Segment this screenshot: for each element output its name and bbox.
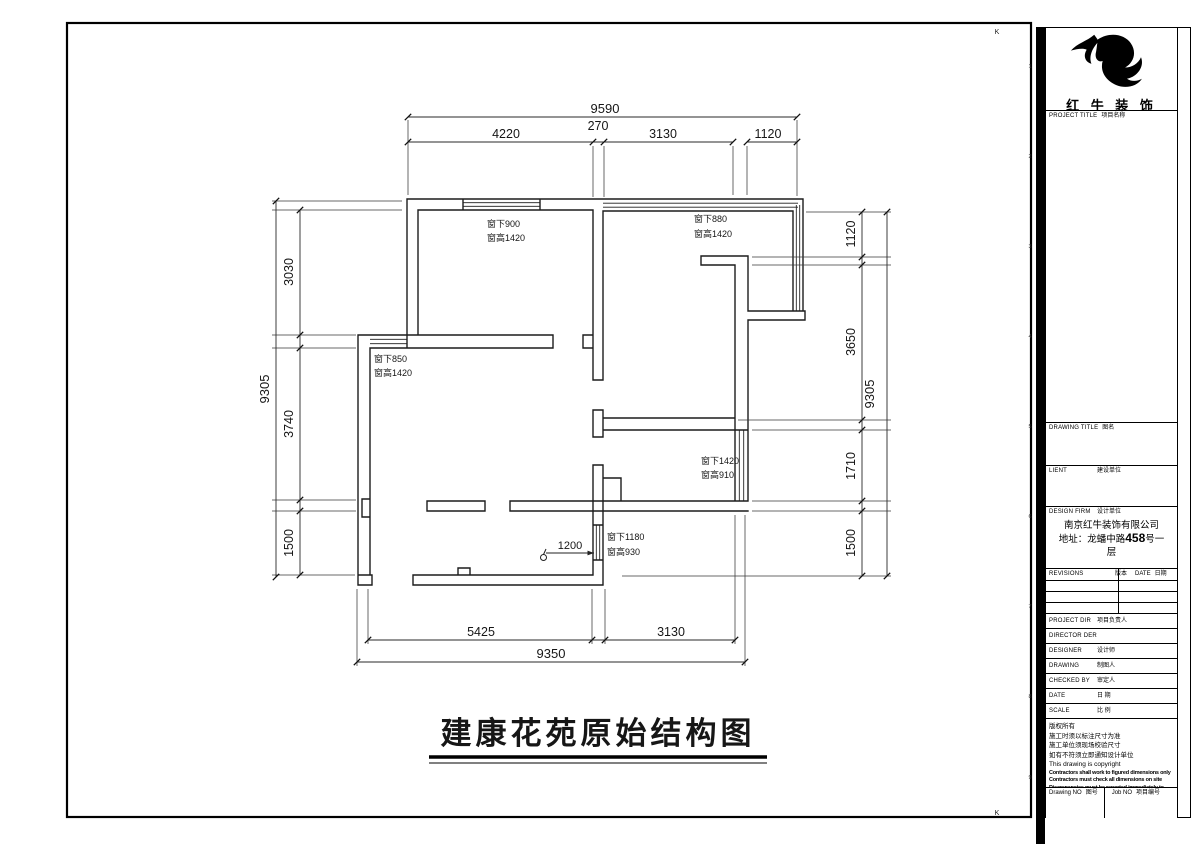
dim-left-seg3: 1500 (282, 529, 296, 557)
win-mid-right-l1: 窗下1420 (701, 455, 739, 466)
scale-label-zh: 比 例 (1097, 708, 1111, 714)
floor-plan-canvas: 1200 9590 4220 270 3130 1120 9305 3030 3… (0, 0, 1200, 844)
design-firm-address-line1: 地址：龙蟠中路458号一 (1046, 532, 1177, 546)
dim-right-seg4: 1500 (844, 529, 858, 557)
drawing-title-label-en: DRAWING TITLE (1049, 425, 1098, 432)
project-title-label-zh: 项目名称 (1101, 113, 1125, 119)
win-bottom-l1: 窗下1180 (607, 531, 644, 542)
logo-cell: 红 牛 装 饰 (1046, 28, 1177, 111)
win-top-left-l1: 窗下900 (487, 218, 520, 229)
win-left-l1: 窗下850 (374, 353, 407, 364)
designer-label-zh: 设计师 (1097, 648, 1115, 654)
dim-left-seg2: 3740 (282, 410, 296, 438)
frame-marker-top: K (995, 29, 1000, 36)
dim-top-seg3: 3130 (649, 127, 677, 141)
copyright-bold-line-2: Contractors must check all dimensions on… (1049, 777, 1177, 785)
zone-marker-6: 6 (1025, 514, 1035, 520)
scale-label-en: SCALE (1049, 708, 1093, 715)
client-label-en: LIENT (1049, 468, 1093, 475)
titleblock: 红 牛 装 饰 PROJECT TITLE项目名称 DRAWING TITLE图… (1045, 27, 1178, 818)
leader-1200: 1200 (541, 540, 595, 561)
revisions-label: REVISIONS (1049, 571, 1111, 578)
checked-by-label-zh: 审定人 (1097, 678, 1115, 684)
redbull-logo-icon (1060, 31, 1164, 89)
dim-top-seg2: 270 (588, 119, 609, 133)
revision-row-3 (1046, 603, 1177, 614)
drawing-no-label-zh: 图号 (1086, 790, 1098, 796)
window-labels: 窗下900 窗高1420 窗下880 窗高1420 窗下850 窗高1420 窗… (374, 213, 739, 557)
dim-top-seg4: 1120 (755, 127, 782, 141)
director-label-en: DIRECTOR DER (1049, 633, 1097, 640)
date-cell: DATE日 期 (1046, 689, 1177, 704)
project-title-label-en: PROJECT TITLE (1049, 113, 1097, 120)
revision-row-1 (1046, 581, 1177, 592)
zone-marker-1: 1 (1025, 64, 1035, 70)
drawing-title-label-zh: 图名 (1102, 425, 1114, 431)
zone-marker-9: 9 (1025, 775, 1035, 781)
designer-cell: DESIGNER设计师 (1046, 644, 1177, 659)
copyright-line-2: 施工时须以标注尺寸为准 (1049, 732, 1177, 742)
zone-marker-5: 5 (1025, 424, 1035, 430)
win-top-left-l2: 窗高1420 (487, 232, 525, 243)
copyright-line-1: 版权所有 (1049, 722, 1177, 732)
copyright-line-4: 如有不符须立即通知设计单位 (1049, 751, 1177, 761)
design-firm-cell: DESIGN FIRM设计单位 南京红牛装饰有限公司 地址：龙蟠中路458号一 … (1046, 507, 1177, 569)
checked-by-label-en: CHECKED BY (1049, 678, 1093, 685)
design-firm-name: 南京红牛装饰有限公司 (1046, 519, 1177, 532)
job-no-label-zh: 项目编号 (1136, 790, 1160, 796)
copyright-line-5: This drawing is copyright (1049, 760, 1177, 770)
zone-marker-7: 7 (1025, 604, 1035, 610)
dim-left-seg1: 3030 (282, 258, 296, 286)
drawing-by-cell: DRAWING制图人 (1046, 659, 1177, 674)
win-top-right-l1: 窗下880 (694, 213, 727, 224)
win-left-l2: 窗高1420 (374, 367, 412, 378)
dim-right-seg3: 1710 (844, 452, 858, 480)
revisions-date-label-zh: 日期 (1155, 571, 1167, 577)
project-dir-label-en: PROJECT DIR (1049, 618, 1093, 625)
zone-marker-2: 2 (1025, 154, 1035, 160)
dim-right-seg2: 3650 (844, 328, 858, 356)
dim-left-overall: 9305 (257, 375, 272, 404)
address-number: 458 (1125, 531, 1145, 545)
copyright-bold-line-1: Contractors shall work to figured dimens… (1049, 770, 1177, 778)
titleblock-divider-bar (1036, 27, 1045, 844)
leader-dim-text: 1200 (558, 540, 582, 552)
leader-origin-circle (541, 555, 547, 561)
win-bottom-l2: 窗高930 (607, 546, 640, 557)
drawing-sheet: { "brand": { "name": "红 牛 装 饰" }, "title… (0, 0, 1200, 844)
titleblock-right-strip (1178, 27, 1191, 818)
dimension-ticks (273, 114, 890, 665)
zone-marker-8: 8 (1025, 694, 1035, 700)
revisions-column-divider (1118, 569, 1119, 614)
revisions-label-zh: 版本 (1115, 571, 1127, 577)
win-top-right-l2: 窗高1420 (694, 228, 732, 239)
project-title-cell: PROJECT TITLE项目名称 (1046, 111, 1177, 423)
design-firm-label-en: DESIGN FIRM (1049, 509, 1093, 516)
design-firm-label-zh: 设计单位 (1097, 509, 1121, 515)
copyright-line-3: 施工单位须现场校验尺寸 (1049, 741, 1177, 751)
plan-title: 建康花苑原始结构图 (441, 716, 756, 751)
drawing-by-label-en: DRAWING (1049, 663, 1093, 670)
dim-top-overall: 9590 (591, 101, 620, 116)
drawing-title-cell: DRAWING TITLE图名 (1046, 423, 1177, 466)
revisions-header-cell: REVISIONS版本DATE日期 (1046, 569, 1177, 581)
address-pre: 地址：龙蟠中路 (1059, 534, 1126, 545)
drawing-no-label-en: Drawing NO (1049, 790, 1082, 796)
copyright-cell: 版权所有 施工时须以标注尺寸为准 施工单位须现场校验尺寸 如有不符须立即通知设计… (1046, 719, 1177, 788)
win-mid-right-l2: 窗高910 (701, 469, 734, 480)
drawing-no-cell: Drawing NO图号Job NO项目编号 (1046, 788, 1177, 818)
dim-bottom-seg2: 3130 (657, 625, 685, 639)
scale-cell: SCALE比 例 (1046, 704, 1177, 719)
frame-marker-bottom: K (995, 810, 1000, 817)
date-label-zh: 日 期 (1097, 693, 1111, 699)
dim-bottom-overall: 9350 (537, 646, 566, 661)
checked-by-cell: CHECKED BY审定人 (1046, 674, 1177, 689)
date-label-en: DATE (1049, 693, 1093, 700)
drawing-by-label-zh: 制图人 (1097, 663, 1115, 669)
job-no-label-en: Job NO (1112, 790, 1132, 796)
revisions-date-label: DATE (1135, 571, 1151, 577)
dim-right-overall: 9305 (862, 380, 877, 409)
dim-top-seg1: 4220 (492, 127, 520, 141)
designer-label-en: DESIGNER (1049, 648, 1093, 655)
revision-row-2 (1046, 592, 1177, 603)
floor-plan-walls (358, 199, 805, 585)
client-cell: LIENT建设单位 (1046, 466, 1177, 507)
project-dir-cell: PROJECT DIR项目负责人 (1046, 614, 1177, 629)
project-dir-label-zh: 项目负责人 (1097, 618, 1127, 624)
zone-marker-4: 4 (1025, 334, 1035, 340)
director-cell: DIRECTOR DER (1046, 629, 1177, 644)
drawing-job-divider (1104, 788, 1105, 818)
dim-right-seg1: 1120 (844, 221, 858, 248)
zone-marker-3: 3 (1025, 244, 1035, 250)
design-firm-address-line2: 层 (1046, 546, 1177, 559)
client-label-zh: 建设单位 (1097, 468, 1121, 474)
address-post: 号一 (1145, 534, 1164, 545)
dim-bottom-seg1: 5425 (467, 625, 495, 639)
dimension-extension-lines (272, 120, 891, 666)
